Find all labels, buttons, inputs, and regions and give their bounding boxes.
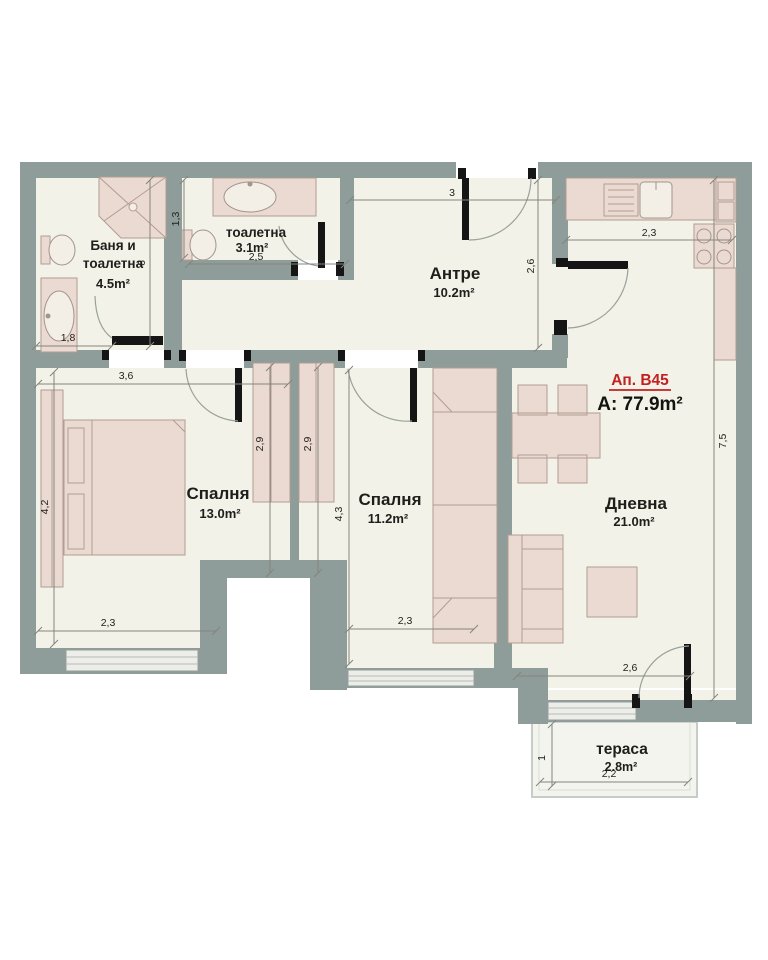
dim-bedroom2-window: 2,3	[398, 615, 413, 627]
apartment-id: Ап. B45	[611, 372, 669, 389]
dim-living-depth: 7,5	[717, 434, 729, 449]
dim-living-window: 2,6	[623, 662, 638, 674]
terrace-label: тераса	[596, 741, 648, 758]
dim-hall-width: 3	[449, 187, 455, 199]
toilet-room-sink-tap	[248, 182, 253, 187]
apartment-area: A: 77.9m²	[597, 394, 683, 415]
bathroom-label-line1: Баня и	[90, 238, 135, 253]
bedroom1-area: 13.0m²	[199, 506, 241, 521]
dim-wardrobe-right: 2,9	[302, 437, 314, 452]
dim-kitchen-width: 2,3	[642, 227, 657, 239]
dim-bedroom1-window: 2,3	[101, 617, 116, 629]
dim-bedroom1-width: 3,6	[119, 370, 134, 382]
dim-terrace-depth: 1	[536, 755, 548, 761]
living-label: Дневна	[605, 494, 668, 513]
bedroom2-area: 11.2m²	[368, 511, 409, 526]
bedroom1-label: Спалня	[187, 484, 250, 503]
hall-label: Антре	[430, 264, 481, 283]
floor-plan-page: 3 2,6 2,3 1,3 2,5 1,8 6 3,6 4,2 2,3 2,9 …	[0, 0, 768, 960]
dim-bedroom1-depth: 4,2	[39, 500, 51, 515]
hall-area: 10.2m²	[433, 285, 475, 300]
bathroom-sink-tap	[46, 314, 51, 319]
dim-bath-entry: 1,8	[61, 332, 76, 344]
bathroom-label-line2: тоалетна	[83, 256, 144, 271]
floor-plan-svg: 3 2,6 2,3 1,3 2,5 1,8 6 3,6 4,2 2,3 2,9 …	[0, 0, 768, 960]
dim-hall-depth: 2,6	[525, 259, 537, 274]
terrace-area: 2.8m²	[605, 760, 638, 774]
dim-bedroom2-depth: 4,3	[333, 507, 345, 522]
dim-wardrobe-left: 2,9	[254, 437, 266, 452]
dim-toilet-niche: 1,3	[170, 212, 182, 227]
living-area: 21.0m²	[613, 514, 655, 529]
bathroom-toilet-bowl	[49, 235, 75, 265]
bathroom-area: 4.5m²	[96, 276, 131, 291]
toilet-room-toilet-bowl	[190, 230, 216, 260]
bedroom2-label: Спалня	[359, 490, 422, 509]
shower-drain	[129, 203, 137, 211]
toilet-area: 3.1m²	[236, 241, 269, 255]
toilet-label: тоалетна	[226, 225, 287, 240]
